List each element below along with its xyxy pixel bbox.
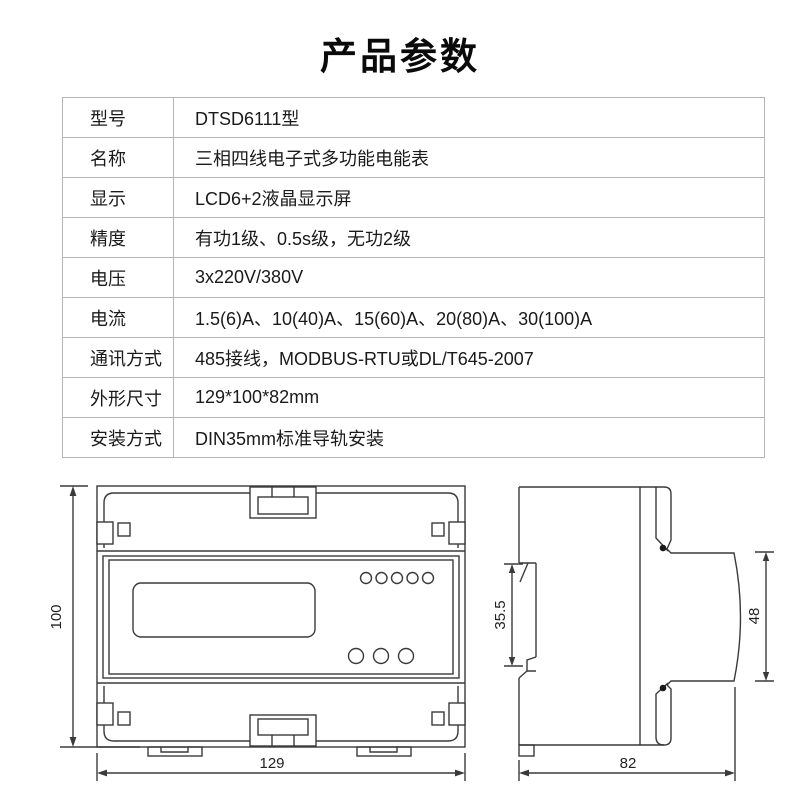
spec-value: 3x220V/380V bbox=[174, 258, 764, 297]
page-title: 产品参数 bbox=[0, 26, 800, 80]
table-row: 通讯方式 485接线，MODBUS-RTU或DL/T645-2007 bbox=[63, 338, 764, 378]
table-row: 名称 三相四线电子式多功能电能表 bbox=[63, 138, 764, 178]
table-row: 外形尺寸 129*100*82mm bbox=[63, 378, 764, 418]
spec-label: 安装方式 bbox=[63, 418, 174, 457]
dimension-side-depth: 82 bbox=[519, 687, 735, 781]
lcd-window bbox=[133, 583, 315, 637]
panel-buttons bbox=[349, 649, 414, 664]
front-height-label: 100 bbox=[48, 604, 65, 629]
dimension-side-notch: 35.5 bbox=[492, 564, 523, 666]
table-row: 电流 1.5(6)A、10(40)A、15(60)A、20(80)A、30(10… bbox=[63, 298, 764, 338]
spec-value: DIN35mm标准导轨安装 bbox=[174, 418, 764, 457]
spec-label: 通讯方式 bbox=[63, 338, 174, 377]
screw-dot bbox=[660, 545, 667, 552]
spec-label: 精度 bbox=[63, 218, 174, 257]
spec-label: 电压 bbox=[63, 258, 174, 297]
front-width-label: 129 bbox=[259, 755, 284, 772]
spec-value: DTSD6111型 bbox=[174, 98, 764, 137]
spec-value: 三相四线电子式多功能电能表 bbox=[174, 138, 764, 177]
top-seal-tab bbox=[250, 487, 316, 518]
screw-dot bbox=[660, 685, 667, 692]
table-row: 电压 3x220V/380V bbox=[63, 258, 764, 298]
spec-table: 型号 DTSD6111型 名称 三相四线电子式多功能电能表 显示 LCD6+2液… bbox=[62, 97, 765, 458]
din-rail-claw bbox=[527, 657, 536, 671]
dimension-front-width: 129 bbox=[97, 753, 465, 781]
side-face-label: 48 bbox=[746, 608, 763, 625]
dimension-drawings: 100 129 bbox=[0, 460, 800, 800]
side-depth-label: 82 bbox=[620, 755, 637, 772]
side-notch-label: 35.5 bbox=[492, 600, 509, 629]
table-row: 精度 有功1级、0.5s级，无功2级 bbox=[63, 218, 764, 258]
table-row: 显示 LCD6+2液晶显示屏 bbox=[63, 178, 764, 218]
side-view-drawing bbox=[519, 487, 741, 756]
spec-label: 型号 bbox=[63, 98, 174, 137]
dimension-front-height: 100 bbox=[48, 486, 140, 747]
table-row: 安装方式 DIN35mm标准导轨安装 bbox=[63, 418, 764, 458]
led-indicators bbox=[361, 573, 434, 584]
spec-value: 129*100*82mm bbox=[174, 378, 764, 417]
front-view-drawing bbox=[97, 486, 465, 756]
spec-label: 外形尺寸 bbox=[63, 378, 174, 417]
spec-value: 485接线，MODBUS-RTU或DL/T645-2007 bbox=[174, 338, 764, 377]
spec-value: LCD6+2液晶显示屏 bbox=[174, 178, 764, 217]
spec-label: 名称 bbox=[63, 138, 174, 177]
technical-drawing-svg: 100 129 bbox=[0, 460, 800, 800]
product-parameters-page: 产品参数 型号 DTSD6111型 名称 三相四线电子式多功能电能表 显示 LC… bbox=[0, 0, 800, 800]
spec-label: 电流 bbox=[63, 298, 174, 337]
spec-label: 显示 bbox=[63, 178, 174, 217]
spec-value: 有功1级、0.5s级，无功2级 bbox=[174, 218, 764, 257]
spec-value: 1.5(6)A、10(40)A、15(60)A、20(80)A、30(100)A bbox=[174, 298, 764, 337]
dimension-side-face: 48 bbox=[746, 552, 774, 681]
bottom-seal-tab bbox=[250, 715, 316, 746]
table-row: 型号 DTSD6111型 bbox=[63, 98, 764, 138]
